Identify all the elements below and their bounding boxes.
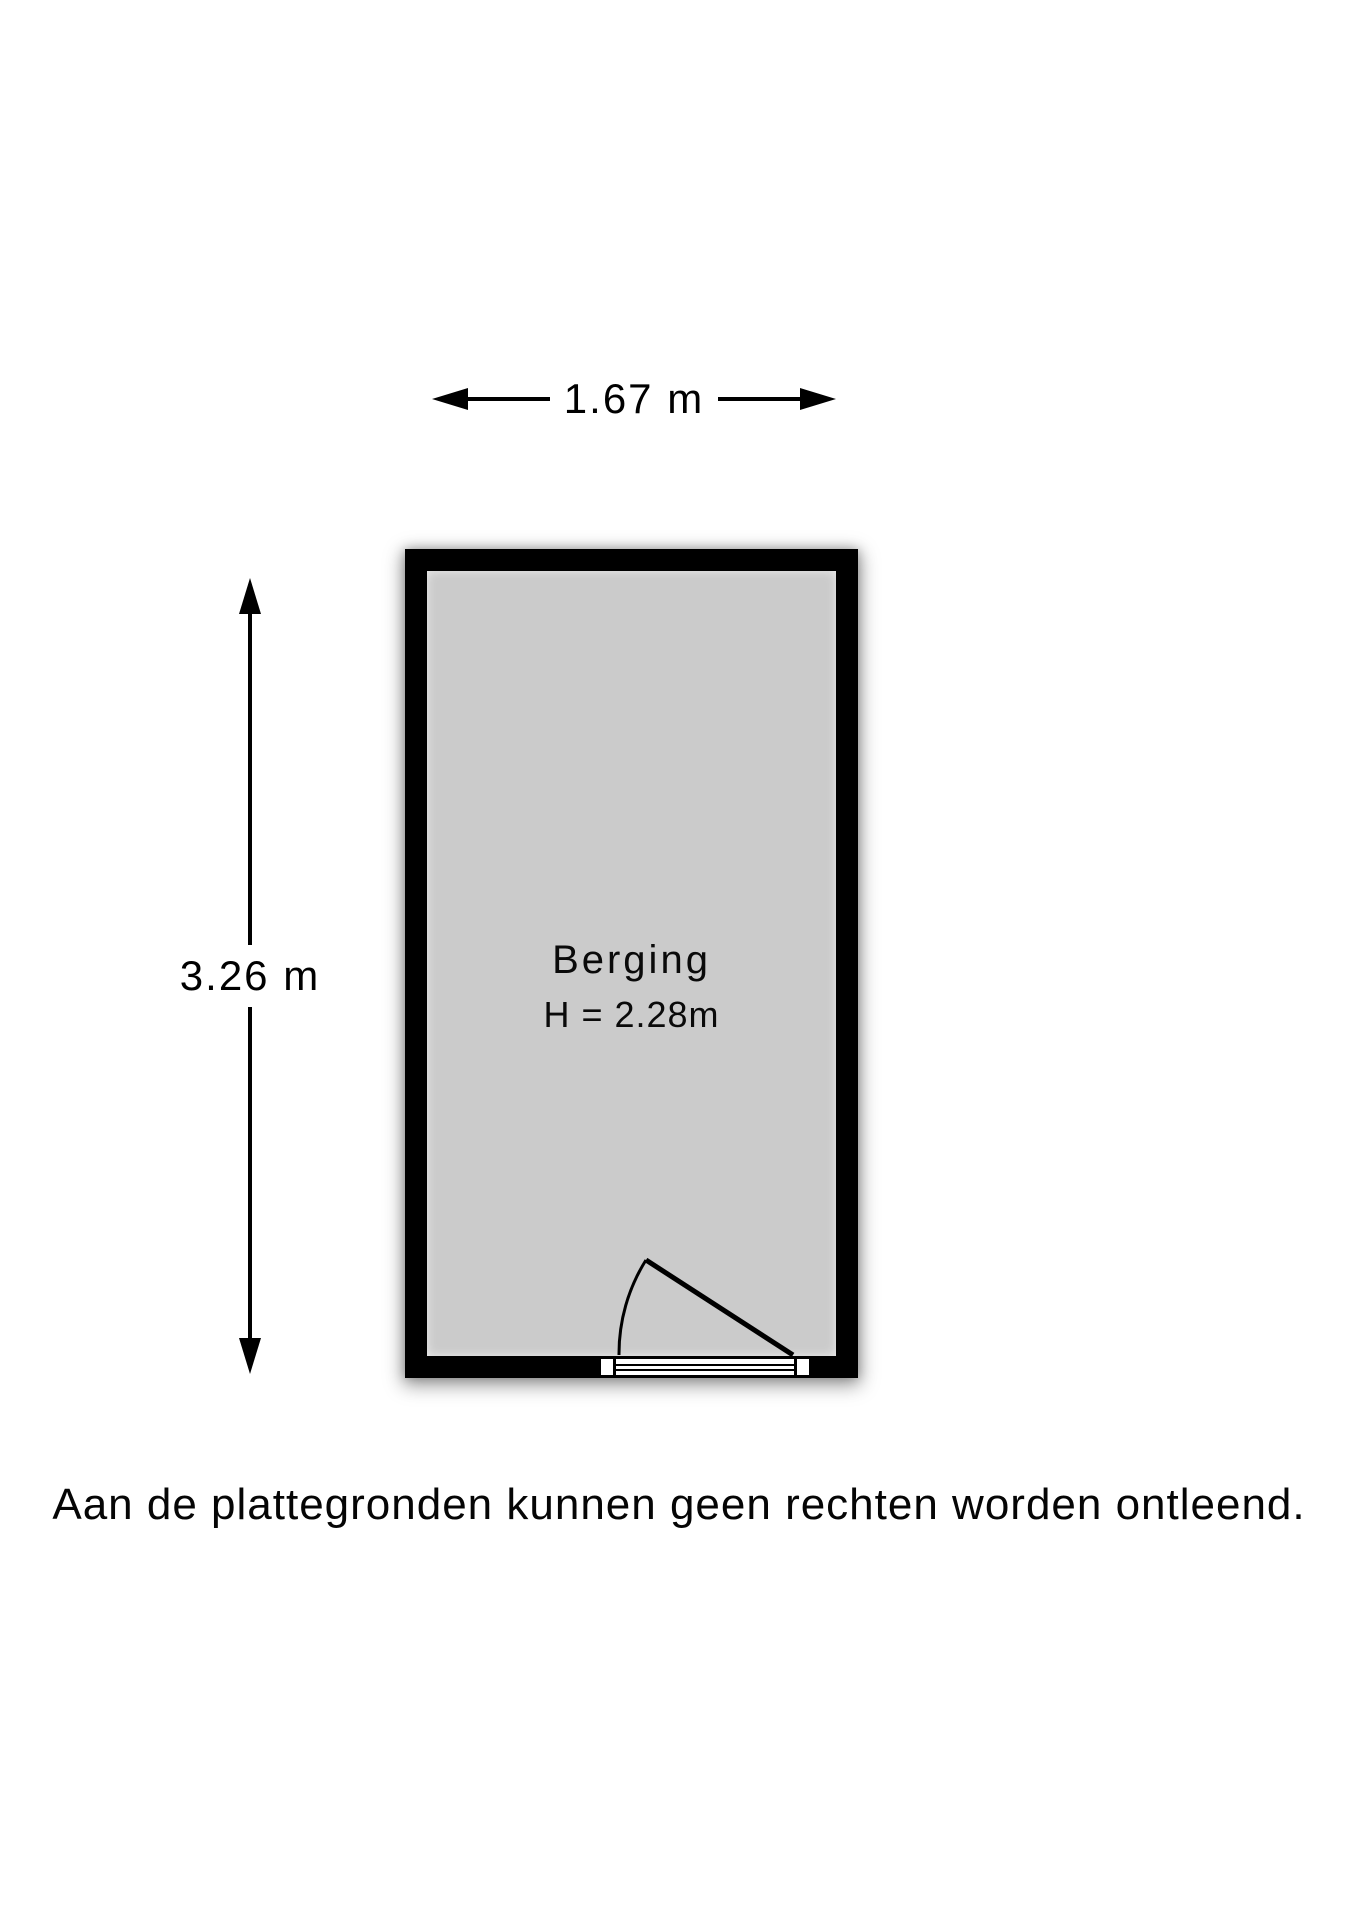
dimension-depth: 3.26 m — [228, 578, 272, 1374]
door-jamb-left — [598, 1356, 616, 1378]
floorplan-canvas: 1.67 m 3.26 m Berging H = 2.28m Aan de p… — [0, 0, 1358, 1920]
dimension-depth-label: 3.26 m — [174, 945, 326, 1007]
room-name: Berging — [405, 938, 858, 982]
dimension-line — [248, 614, 252, 945]
dimension-line — [468, 397, 550, 401]
door-opening — [598, 1356, 812, 1378]
arrowhead-up-icon — [239, 578, 261, 614]
room-label: Berging H = 2.28m — [405, 938, 858, 1036]
arrowhead-down-icon — [239, 1338, 261, 1374]
door-jamb-right — [794, 1356, 812, 1378]
dimension-line — [248, 1007, 252, 1338]
arrowhead-right-icon — [800, 388, 836, 410]
arrowhead-left-icon — [432, 388, 468, 410]
dimension-width: 1.67 m — [432, 376, 836, 422]
dimension-width-label: 1.67 m — [550, 378, 718, 420]
dimension-line — [718, 397, 800, 401]
room-ceiling-height: H = 2.28m — [405, 994, 858, 1036]
door-threshold — [616, 1356, 794, 1378]
disclaimer-text: Aan de plattegronden kunnen geen rechten… — [0, 1480, 1358, 1530]
